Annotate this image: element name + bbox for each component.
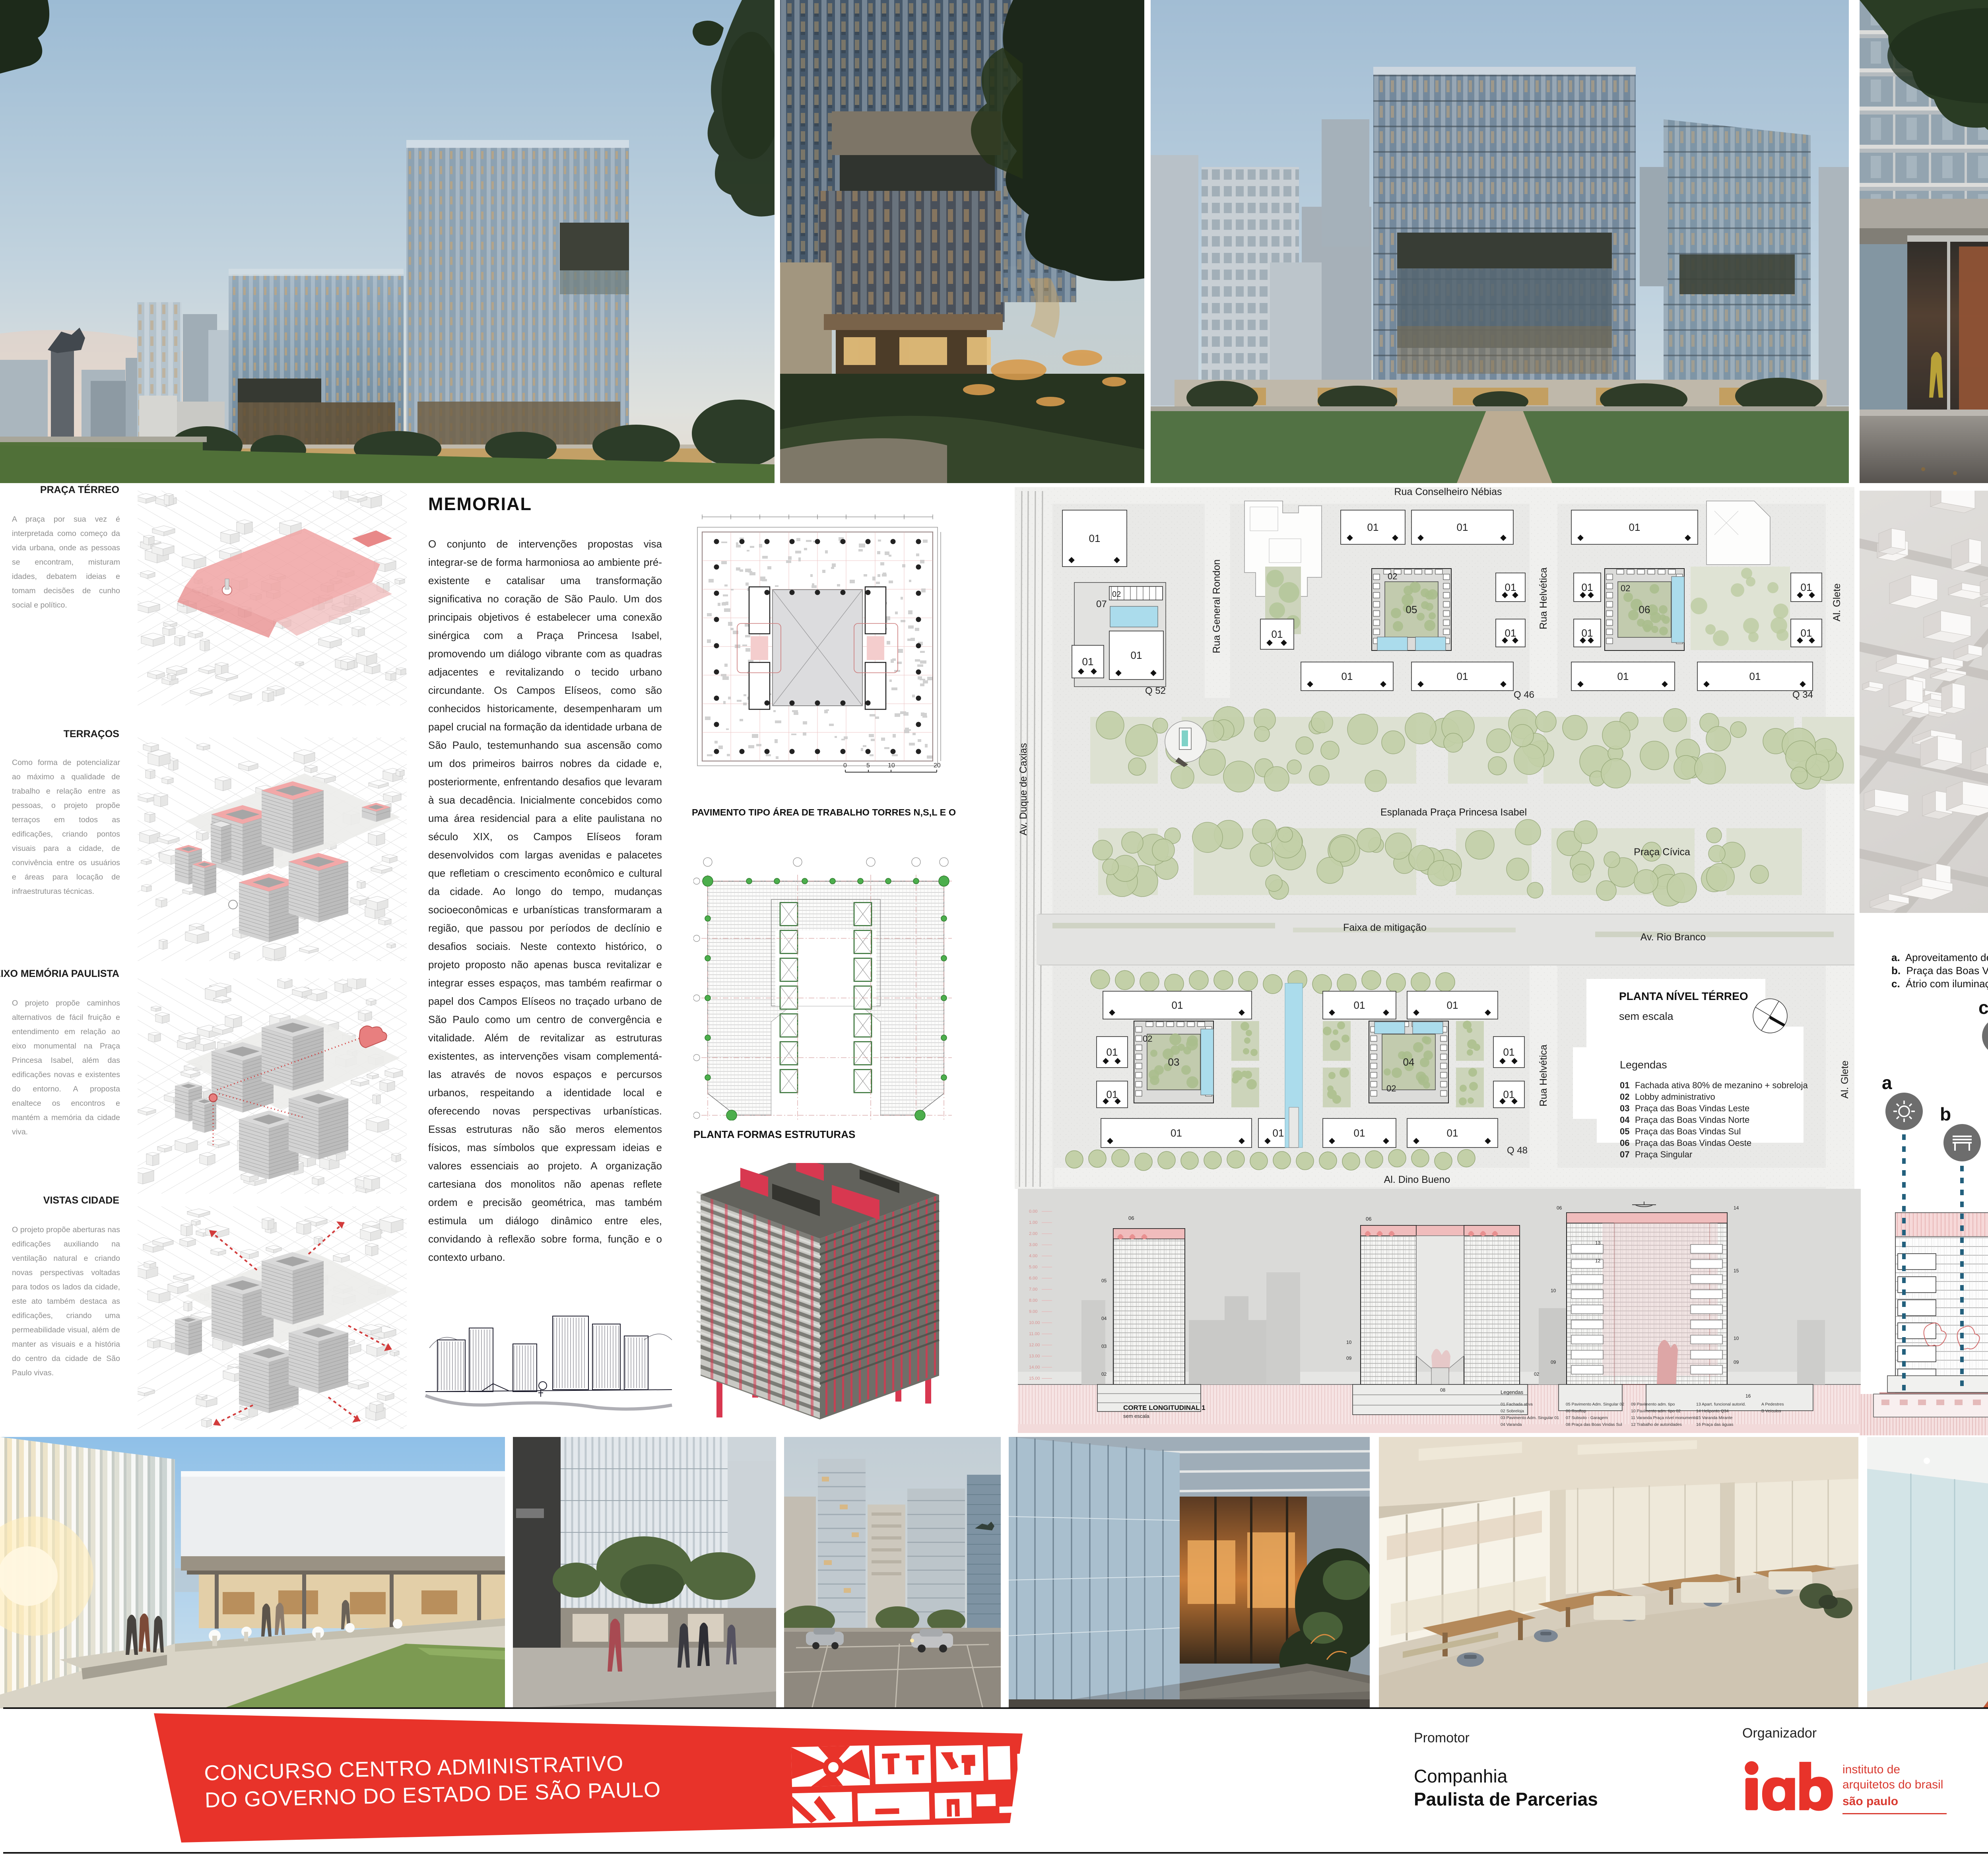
svg-text:02: 02 bbox=[1101, 1371, 1107, 1377]
svg-text:01: 01 bbox=[1089, 532, 1101, 544]
svg-text:14.00: 14.00 bbox=[1029, 1365, 1040, 1370]
svg-text:05 Pavimento Adm. Singular 02: 05 Pavimento Adm. Singular 02 bbox=[1566, 1402, 1624, 1407]
svg-text:01: 01 bbox=[1503, 1089, 1515, 1101]
svg-text:06: 06 bbox=[1128, 1215, 1134, 1221]
svg-text:02: 02 bbox=[1620, 1092, 1629, 1102]
svg-text:4.00: 4.00 bbox=[1029, 1254, 1037, 1258]
svg-text:12 Trabalho de autoridades: 12 Trabalho de autoridades bbox=[1631, 1422, 1682, 1427]
svg-text:Praça das Boas Vindas Leste: Praça das Boas Vindas Leste bbox=[1635, 1103, 1749, 1113]
svg-text:10.00: 10.00 bbox=[1029, 1320, 1040, 1325]
svg-text:8.00: 8.00 bbox=[1029, 1298, 1037, 1303]
svg-text:a: a bbox=[1882, 1072, 1892, 1093]
svg-text:09: 09 bbox=[1346, 1355, 1352, 1361]
svg-text:Rua Conselheiro Nébias: Rua Conselheiro Nébias bbox=[1394, 487, 1502, 497]
svg-text:16 Praça das águas: 16 Praça das águas bbox=[1696, 1422, 1733, 1427]
svg-text:06: 06 bbox=[1366, 1216, 1371, 1222]
svg-text:04: 04 bbox=[1101, 1316, 1107, 1321]
svg-text:01: 01 bbox=[1801, 627, 1812, 639]
svg-text:01: 01 bbox=[1273, 1127, 1284, 1139]
svg-text:15 Varanda Mirante: 15 Varanda Mirante bbox=[1696, 1415, 1733, 1420]
svg-text:Q 34: Q 34 bbox=[1792, 689, 1813, 700]
svg-text:02: 02 bbox=[1621, 583, 1630, 593]
svg-text:01: 01 bbox=[1131, 649, 1142, 661]
svg-text:0: 0 bbox=[843, 762, 847, 769]
svg-text:Lobby administrativo: Lobby administrativo bbox=[1635, 1092, 1715, 1102]
svg-text:05: 05 bbox=[1406, 604, 1417, 615]
svg-text:01: 01 bbox=[1503, 1046, 1515, 1058]
svg-text:02: 02 bbox=[1388, 571, 1397, 581]
svg-text:16: 16 bbox=[1745, 1393, 1751, 1399]
svg-text:Faixa de mitigação: Faixa de mitigação bbox=[1343, 922, 1427, 933]
svg-text:01: 01 bbox=[1617, 670, 1629, 682]
svg-text:04: 04 bbox=[1620, 1115, 1630, 1125]
svg-text:07: 07 bbox=[1096, 599, 1107, 610]
svg-text:13: 13 bbox=[1595, 1240, 1601, 1246]
svg-text:07 Subsolo - Garagem: 07 Subsolo - Garagem bbox=[1566, 1415, 1608, 1420]
svg-text:12: 12 bbox=[1595, 1258, 1601, 1264]
svg-text:14 Heliponto Q34: 14 Heliponto Q34 bbox=[1696, 1409, 1729, 1413]
svg-text:Fachada ativa 80% de mezanino: Fachada ativa 80% de mezanino + sobreloj… bbox=[1635, 1080, 1808, 1090]
svg-text:Al. Dino Bueno: Al. Dino Bueno bbox=[1384, 1174, 1450, 1185]
svg-text:01: 01 bbox=[1272, 628, 1283, 640]
svg-text:5.00: 5.00 bbox=[1029, 1265, 1037, 1270]
svg-text:Praça das Boas Vindas Oeste: Praça das Boas Vindas Oeste bbox=[1635, 1138, 1751, 1148]
svg-text:08: 08 bbox=[1440, 1387, 1446, 1393]
svg-text:01: 01 bbox=[1801, 581, 1812, 593]
svg-text:10: 10 bbox=[888, 762, 895, 769]
svg-text:14: 14 bbox=[1734, 1205, 1739, 1211]
svg-text:01: 01 bbox=[1629, 521, 1640, 533]
svg-text:04 Varanda: 04 Varanda bbox=[1501, 1422, 1522, 1427]
svg-text:instituto de: instituto de bbox=[1842, 1763, 1900, 1776]
svg-text:sem escala: sem escala bbox=[1619, 1010, 1674, 1022]
svg-text:01: 01 bbox=[1354, 999, 1365, 1011]
svg-text:arquitetos do brasil: arquitetos do brasil bbox=[1842, 1778, 1943, 1791]
svg-text:15.00: 15.00 bbox=[1029, 1376, 1040, 1381]
svg-text:0.00: 0.00 bbox=[1029, 1209, 1037, 1214]
svg-text:Rua Helvética: Rua Helvética bbox=[1538, 567, 1549, 629]
svg-text:12.00: 12.00 bbox=[1029, 1343, 1040, 1347]
svg-text:03: 03 bbox=[1101, 1344, 1107, 1349]
svg-text:Q 52: Q 52 bbox=[1145, 685, 1166, 696]
svg-text:01: 01 bbox=[1457, 521, 1468, 533]
svg-text:b: b bbox=[1940, 1104, 1951, 1124]
svg-text:Legendas: Legendas bbox=[1501, 1389, 1524, 1395]
svg-text:Legendas: Legendas bbox=[1620, 1059, 1667, 1071]
svg-text:01: 01 bbox=[1457, 670, 1468, 682]
svg-text:B Veículos: B Veículos bbox=[1761, 1409, 1781, 1413]
svg-text:02: 02 bbox=[1534, 1371, 1540, 1377]
svg-text:c: c bbox=[1978, 1002, 1988, 1018]
svg-text:01: 01 bbox=[1505, 627, 1516, 639]
svg-text:7.00: 7.00 bbox=[1029, 1287, 1037, 1292]
svg-text:Al. Glete: Al. Glete bbox=[1839, 1060, 1850, 1099]
svg-text:Av. Duque de Caxias: Av. Duque de Caxias bbox=[1018, 743, 1029, 836]
svg-text:01: 01 bbox=[1172, 999, 1183, 1011]
svg-text:01: 01 bbox=[1447, 1127, 1458, 1139]
svg-text:CORTE LONGITUDINAL 1: CORTE LONGITUDINAL 1 bbox=[1123, 1404, 1206, 1412]
svg-text:07: 07 bbox=[1620, 1149, 1629, 1159]
svg-text:08 Praça das Boas Vindas Sul: 08 Praça das Boas Vindas Sul bbox=[1566, 1422, 1622, 1427]
svg-text:02: 02 bbox=[1112, 590, 1121, 599]
svg-text:9.00: 9.00 bbox=[1029, 1309, 1037, 1314]
svg-text:10: 10 bbox=[1734, 1336, 1739, 1341]
svg-text:01 Fachada ativa: 01 Fachada ativa bbox=[1501, 1402, 1533, 1407]
svg-text:01: 01 bbox=[1447, 999, 1458, 1011]
svg-text:03 Pavimento Adm. Singular 01: 03 Pavimento Adm. Singular 01 bbox=[1501, 1415, 1559, 1420]
svg-text:01: 01 bbox=[1582, 581, 1593, 593]
svg-text:15: 15 bbox=[1734, 1268, 1739, 1274]
svg-text:01: 01 bbox=[1367, 521, 1379, 533]
svg-text:A Pedestres: A Pedestres bbox=[1761, 1402, 1784, 1407]
svg-text:01: 01 bbox=[1171, 1127, 1182, 1139]
svg-text:13.00: 13.00 bbox=[1029, 1354, 1040, 1359]
svg-text:01: 01 bbox=[1342, 670, 1353, 682]
svg-text:01: 01 bbox=[1582, 627, 1593, 639]
svg-text:09: 09 bbox=[1734, 1359, 1739, 1365]
svg-text:são paulo: são paulo bbox=[1842, 1795, 1898, 1808]
svg-text:01: 01 bbox=[1354, 1127, 1365, 1139]
svg-text:02: 02 bbox=[1386, 1083, 1396, 1093]
svg-text:09 Pavimento adm. tipo: 09 Pavimento adm. tipo bbox=[1631, 1402, 1675, 1407]
svg-text:10: 10 bbox=[1346, 1340, 1352, 1345]
svg-text:01: 01 bbox=[1107, 1046, 1118, 1058]
svg-text:06 Rooftop: 06 Rooftop bbox=[1566, 1409, 1586, 1413]
svg-text:Praça das Boas Vindas Norte: Praça das Boas Vindas Norte bbox=[1635, 1115, 1749, 1125]
svg-text:11.00: 11.00 bbox=[1029, 1332, 1040, 1336]
svg-text:5: 5 bbox=[866, 762, 870, 769]
svg-text:02: 02 bbox=[1143, 1034, 1152, 1044]
svg-text:03: 03 bbox=[1620, 1103, 1629, 1113]
svg-text:sem escala: sem escala bbox=[1123, 1413, 1150, 1419]
svg-text:Esplanada Praça Princesa Isabe: Esplanada Praça Princesa Isabel bbox=[1380, 807, 1527, 818]
svg-text:PLANTA NÍVEL TÉRREO: PLANTA NÍVEL TÉRREO bbox=[1619, 990, 1748, 1002]
svg-text:20: 20 bbox=[934, 762, 941, 769]
svg-text:01: 01 bbox=[1749, 670, 1761, 682]
svg-text:10: 10 bbox=[1551, 1288, 1556, 1293]
svg-text:Rua Helvética: Rua Helvética bbox=[1538, 1045, 1549, 1107]
svg-text:01: 01 bbox=[1620, 1080, 1629, 1090]
svg-text:Praça Cívica: Praça Cívica bbox=[1634, 847, 1690, 858]
svg-text:01: 01 bbox=[1082, 656, 1094, 668]
svg-text:Q 46: Q 46 bbox=[1514, 689, 1534, 700]
svg-text:06: 06 bbox=[1639, 604, 1650, 615]
svg-text:6.00: 6.00 bbox=[1029, 1276, 1037, 1281]
svg-text:11 Varanda Praça nível monumen: 11 Varanda Praça nível monumento bbox=[1631, 1415, 1697, 1420]
svg-text:06: 06 bbox=[1557, 1205, 1562, 1211]
svg-text:13 Apart. funcional autorid.: 13 Apart. funcional autorid. bbox=[1696, 1402, 1746, 1407]
svg-text:06: 06 bbox=[1620, 1138, 1629, 1148]
svg-text:04: 04 bbox=[1403, 1056, 1415, 1068]
svg-text:05: 05 bbox=[1620, 1126, 1629, 1136]
svg-text:1.00: 1.00 bbox=[1029, 1220, 1037, 1225]
svg-text:Av. Rio Branco: Av. Rio Branco bbox=[1640, 932, 1706, 943]
svg-text:05: 05 bbox=[1101, 1278, 1107, 1283]
svg-text:Praça das Boas Vindas Sul: Praça das Boas Vindas Sul bbox=[1635, 1126, 1741, 1136]
svg-text:Rua General Rondon: Rua General Rondon bbox=[1211, 559, 1222, 653]
svg-text:01: 01 bbox=[1107, 1089, 1118, 1101]
svg-text:01: 01 bbox=[1505, 581, 1516, 593]
svg-text:Praça Singular: Praça Singular bbox=[1635, 1149, 1692, 1159]
svg-text:2.00: 2.00 bbox=[1029, 1231, 1037, 1236]
svg-text:02 Sobreloja: 02 Sobreloja bbox=[1501, 1409, 1524, 1413]
svg-text:3.00: 3.00 bbox=[1029, 1243, 1037, 1247]
svg-text:09: 09 bbox=[1551, 1359, 1556, 1365]
svg-text:10 Pavimento adm. tipo 02: 10 Pavimento adm. tipo 02 bbox=[1631, 1409, 1681, 1413]
svg-text:Q 48: Q 48 bbox=[1507, 1145, 1528, 1156]
svg-text:03: 03 bbox=[1168, 1056, 1180, 1068]
svg-text:Al. Glete: Al. Glete bbox=[1831, 583, 1842, 621]
